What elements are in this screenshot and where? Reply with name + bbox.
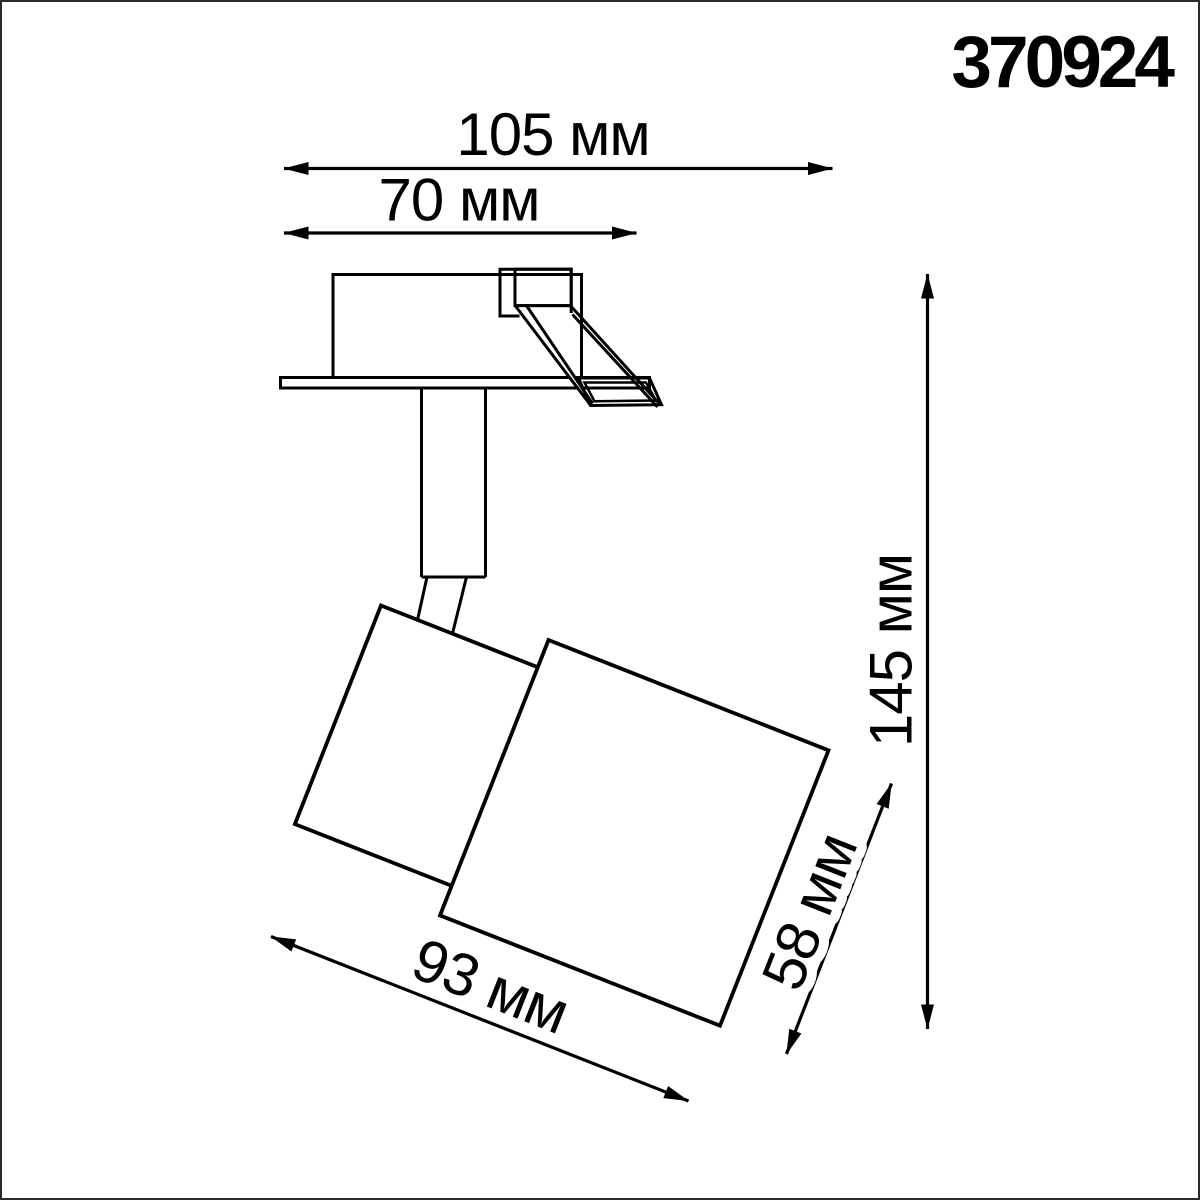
svg-text:145 мм: 145 мм <box>858 554 925 747</box>
svg-text:70 мм: 70 мм <box>379 167 540 234</box>
svg-text:370924: 370924 <box>951 22 1175 103</box>
svg-text:105 мм: 105 мм <box>456 101 649 168</box>
